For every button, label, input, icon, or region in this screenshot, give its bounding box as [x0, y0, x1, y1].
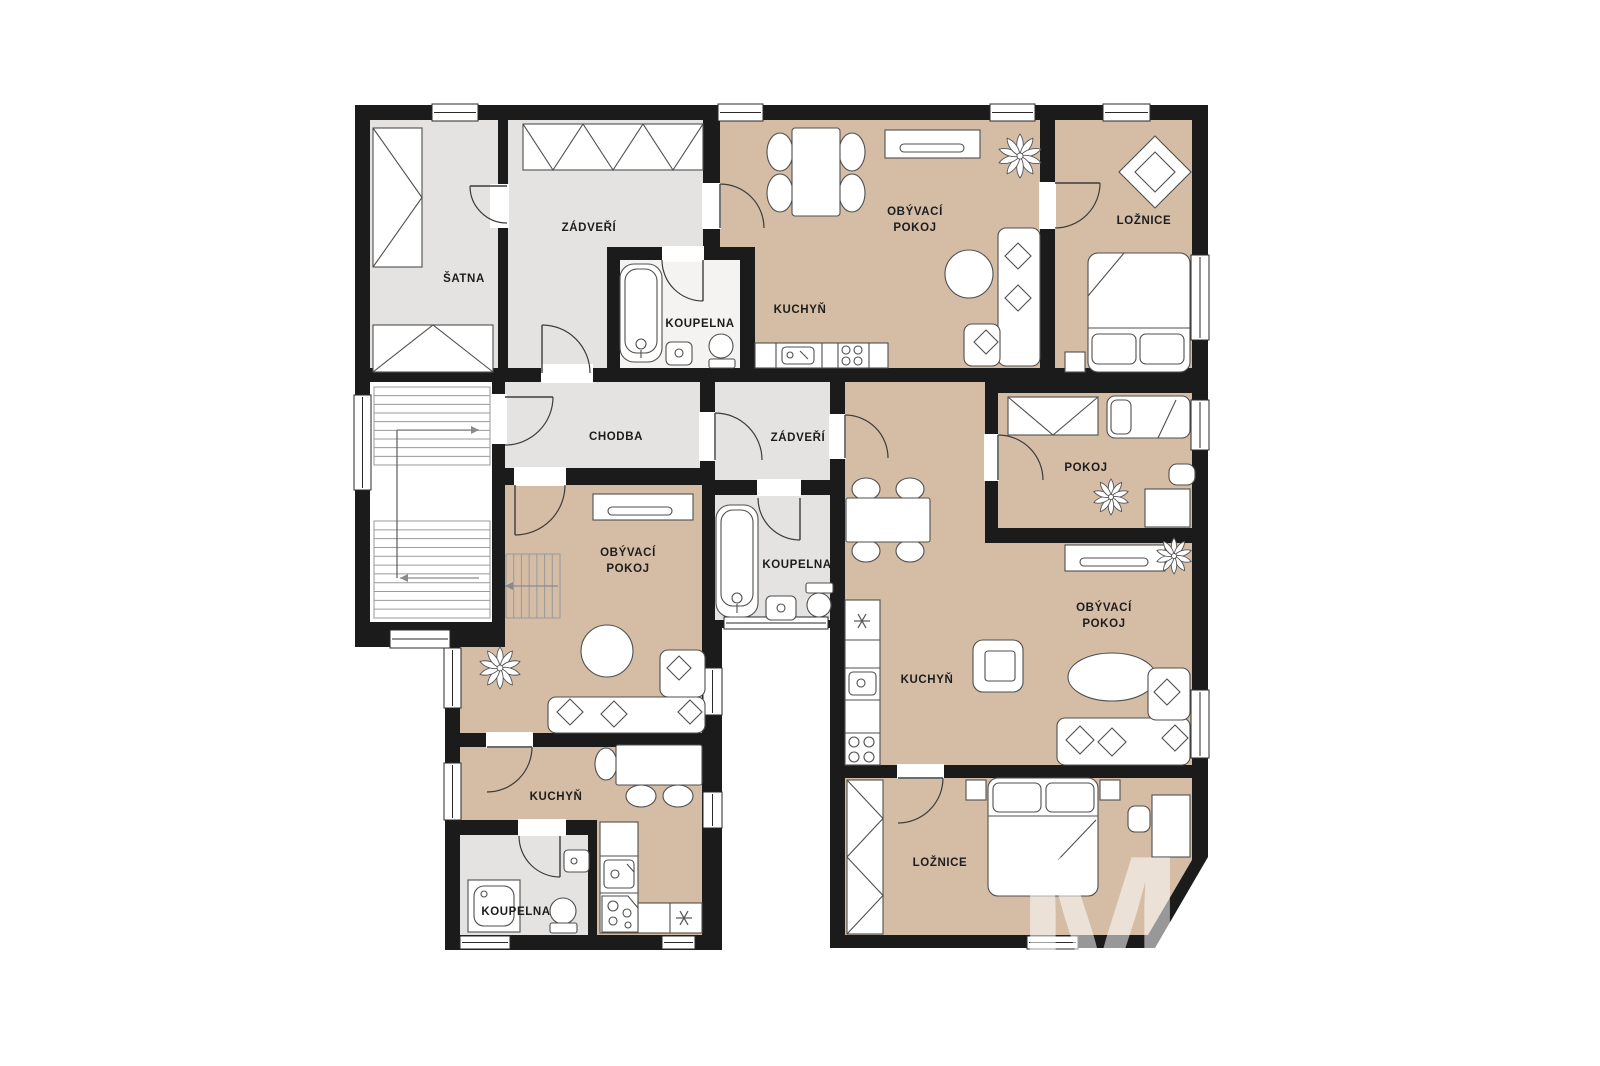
window: [432, 104, 478, 121]
floor-plan-svg: ŠATNAZÁDVEŘÍKOUPELNAKUCHYŇOBÝVACÍPOKOJLO…: [0, 0, 1600, 1066]
main-kitchen-counter: [845, 600, 880, 765]
main-armchair: [973, 640, 1023, 692]
obyv1-table: [581, 625, 633, 677]
door-opening: [702, 183, 721, 229]
zadveri-wardrobe: [523, 124, 703, 170]
door-opening: [662, 246, 704, 262]
room-label: KUCHYŇ: [774, 303, 827, 316]
room-label: KOUPELNA: [481, 906, 550, 918]
door-opening: [518, 819, 566, 836]
room-label: POKOJ: [1064, 462, 1107, 474]
unitb-tv: [885, 130, 980, 158]
room-label: KOUPELNA: [762, 559, 831, 571]
window: [460, 936, 510, 949]
room-label: ZÁDVEŘÍ: [771, 431, 826, 444]
window: [390, 630, 450, 648]
main-coffee-table: [1068, 653, 1156, 701]
window: [703, 668, 722, 715]
door-opening: [490, 184, 509, 228]
window: [444, 763, 461, 820]
window: [990, 104, 1035, 121]
watermark: M: [1017, 815, 1184, 1038]
window: [444, 648, 461, 708]
loznice2-wardrobe: [847, 780, 883, 934]
window: [1103, 104, 1150, 121]
window: [703, 792, 722, 828]
window: [718, 104, 763, 121]
door-opening: [1039, 182, 1056, 229]
room-label: LOŽNICE: [913, 856, 968, 869]
door-opening: [489, 394, 507, 444]
obyv1-tv: [593, 494, 693, 520]
room-label: CHODBA: [589, 431, 643, 443]
door-opening: [829, 414, 846, 459]
main-tv: [1065, 545, 1165, 571]
pokoj-bed: [1107, 396, 1190, 438]
door-opening: [897, 764, 944, 779]
room-label: KUCHYŇ: [530, 790, 583, 803]
pokoj-wardrobe: [1008, 397, 1098, 435]
room-label: ŠATNA: [443, 272, 485, 285]
room-label: KUCHYŇ: [901, 673, 954, 686]
window: [354, 395, 371, 490]
floor-plan: ŠATNAZÁDVEŘÍKOUPELNAKUCHYŇOBÝVACÍPOKOJLO…: [0, 0, 1600, 1066]
window: [662, 936, 695, 949]
window: [1191, 400, 1209, 450]
door-opening: [486, 732, 533, 748]
room-stairwell: [370, 382, 492, 622]
door-opening: [541, 364, 593, 383]
room-label: ZÁDVEŘÍ: [562, 221, 617, 234]
door-opening: [699, 412, 716, 461]
unitb-coffee-table: [945, 250, 993, 298]
door-opening: [757, 479, 801, 496]
room-label: LOŽNICE: [1117, 214, 1172, 227]
door-opening: [984, 434, 999, 481]
unitb-kitchen-counter: [755, 343, 888, 368]
window: [1191, 255, 1209, 340]
room-zadveri-2: [715, 382, 830, 480]
window: [1191, 690, 1209, 758]
door-opening: [514, 467, 566, 486]
room-label: KOUPELNA: [665, 318, 734, 330]
room-chodba: [505, 382, 700, 468]
